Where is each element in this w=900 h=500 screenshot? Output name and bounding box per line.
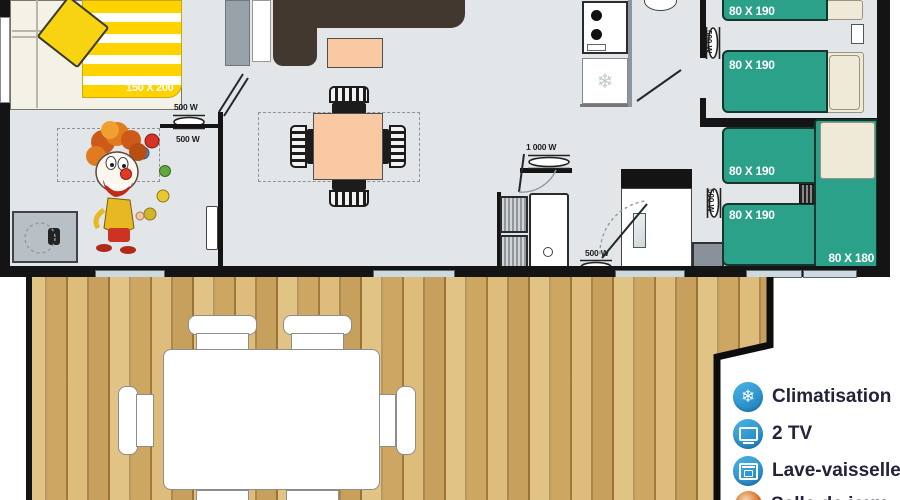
patio-chair-seat	[196, 490, 249, 500]
radiator-label: 500 W	[174, 102, 198, 112]
bedroom1-nightstand	[851, 24, 864, 44]
bottom-window	[803, 270, 857, 278]
bottom-window	[373, 270, 455, 278]
legend-label: 2 TV	[772, 423, 812, 445]
side-shelf	[252, 0, 271, 62]
radiator	[172, 113, 206, 131]
fridge: ❄	[582, 58, 628, 104]
dining-chair-back	[329, 86, 369, 103]
radiator-label: 500 W	[176, 134, 200, 144]
radiator-label: 500 W	[706, 189, 715, 212]
master-bedroom-wall	[218, 112, 223, 266]
wc-mirror	[633, 213, 646, 248]
left-wall	[0, 103, 10, 266]
shower-tray	[529, 193, 569, 273]
bed-size-label: 80 X 180	[828, 251, 874, 265]
towel-radiator	[527, 153, 571, 171]
bed-pillow	[829, 55, 860, 110]
coffee-table	[327, 38, 383, 68]
shower-drain	[543, 247, 553, 257]
bottom-window	[615, 270, 685, 278]
bed-size-label: 80 X 190	[729, 208, 775, 222]
master-bed-size-label: 150 X 200	[126, 82, 173, 94]
patio-chair-back	[283, 315, 352, 335]
bottom-window	[95, 270, 165, 278]
bedroom1-wall	[700, 0, 706, 58]
master-door-leaf	[206, 206, 218, 250]
wc-wardrobe	[621, 169, 692, 188]
stove-burner	[591, 10, 602, 21]
bathroom-wardrobe	[500, 196, 528, 233]
kitchen-counter-edge	[580, 104, 632, 107]
bedroom1-wall	[700, 98, 706, 120]
legend-row-partial: Salle de jeux	[735, 491, 886, 500]
deck-left-border	[26, 277, 32, 500]
legend-row-tv: 2 TV	[733, 419, 812, 449]
dining-chair-back	[290, 125, 307, 168]
patio-chair-back	[188, 315, 257, 335]
dining-chair-back	[389, 125, 406, 168]
stove-burner	[591, 29, 602, 40]
legend-row-climatisation: ❄ Climatisation	[733, 382, 891, 412]
legend-row-lave-vaisselle: Lave-vaisselle	[733, 456, 900, 486]
left-wall	[0, 0, 10, 17]
floor-plan-screenshot: 150 X 200 500 W 500 W ❄ 500 W 1 000	[0, 0, 900, 500]
radiator-label: 1 000 W	[526, 142, 556, 152]
master-bedroom-wall	[160, 124, 218, 128]
kitchen-divider-wall	[628, 0, 632, 107]
clown-icon	[735, 491, 762, 500]
legend-label: Climatisation	[772, 386, 891, 408]
right-wall	[877, 0, 890, 268]
stove-small-sink	[587, 44, 606, 51]
master-bed-headboard-line	[36, 0, 38, 108]
patio-chair-seat	[286, 490, 339, 500]
dressing-table	[12, 211, 78, 263]
tv-icon	[733, 419, 763, 449]
dressing-table-item	[48, 228, 60, 245]
wc-room	[621, 188, 692, 273]
left-window	[0, 17, 10, 103]
patio-chair-seat	[136, 394, 154, 447]
partition-wall	[225, 0, 250, 66]
bed-size-label: 80 X 190	[729, 164, 775, 178]
bottom-window	[746, 270, 802, 278]
snowflake-icon: ❄	[733, 382, 763, 412]
dining-table	[313, 113, 383, 180]
patio-table	[163, 349, 380, 490]
bed-size-label: 80 X 190	[729, 4, 775, 18]
patio-chair-back	[118, 386, 138, 455]
dining-chair-back	[329, 190, 369, 207]
patio-chair-seat	[378, 394, 396, 447]
radiator-label: 500 W	[585, 248, 609, 258]
master-wardrobe-dashed	[57, 128, 160, 182]
sofa-main-section	[273, 0, 465, 28]
legend-label: Lave-vaisselle	[772, 460, 900, 482]
dining-chair-seat	[332, 179, 366, 190]
bed-size-label: 80 X 190	[729, 58, 775, 72]
patio-chair-back	[396, 386, 416, 455]
legend-label: Salle de jeux	[771, 494, 886, 500]
bed-pillow	[820, 122, 875, 179]
dishwasher-icon	[733, 456, 763, 486]
bed-sheet	[824, 0, 863, 20]
